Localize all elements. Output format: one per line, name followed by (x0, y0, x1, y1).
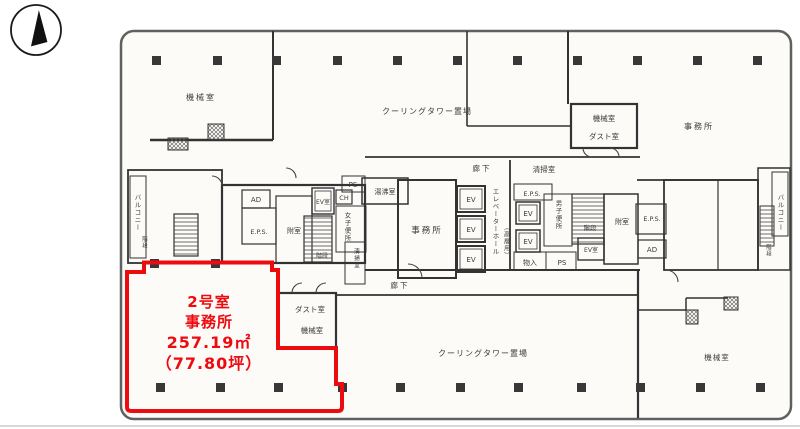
room-label-elevator-4: EV (523, 210, 532, 218)
north-arrow-compass (11, 5, 61, 55)
room-label-dust-room-top-right: ダスト室 (589, 131, 619, 141)
room-label-eps-center: E.P.S. (523, 190, 540, 198)
room-label-corridor-bottom: 廊下 (391, 280, 410, 290)
floor-plan-drawing: 機械室 クーリングタワー置場 機械室 ダスト室 事務所 バルコニー 階段 AD … (0, 0, 800, 429)
room-label-machine-room-notch: 機械室 (301, 325, 324, 335)
room-label-office-top-right: 事務所 (684, 121, 714, 131)
highlight-room-no: 2号室 (187, 293, 230, 311)
room-label-ev-room-left: EV室 (316, 198, 330, 206)
room-label-ad-left: AD (251, 196, 261, 204)
room-label-cooling-tower-bottom: クーリングタワー置場 (438, 348, 528, 358)
floor-plan-page: 機械室 クーリングタワー置場 機械室 ダスト室 事務所 バルコニー 階段 AD … (0, 0, 800, 429)
room-label-ps-right: PS (558, 259, 567, 267)
room-label-hot-water-room: 湯沸室 (375, 187, 396, 196)
room-label-elevator-hall: エレベーターホール (491, 188, 499, 256)
highlight-area-sqm: 257.19㎡ (167, 333, 252, 352)
room-label-cooling-tower-top: クーリングタワー置場 (382, 106, 472, 116)
room-label-machine-room-top-left: 機械室 (186, 92, 216, 102)
room-label-corridor-top: 廊下 (473, 163, 492, 173)
room-label-womens-toilet: 女子便所 (343, 211, 351, 243)
room-label-stairs-balcony-right: 階段 (765, 243, 772, 258)
room-label-ev-room-right: EV室 (584, 246, 598, 254)
room-label-elevator-2: EV (466, 226, 475, 234)
room-label-balcony-left: バルコニー (133, 194, 141, 232)
room-label-eps-right: E.P.S. (643, 215, 660, 223)
room-label-eps-left: E.P.S. (250, 228, 267, 236)
room-label-high-rise: （高層用） (503, 224, 510, 259)
room-label-anteroom-left: 附室 (287, 226, 301, 235)
room-label-stairs-balcony-left: 階段 (141, 235, 148, 250)
room-label-elevator-3: EV (466, 256, 475, 264)
room-label-balcony-right: バルコニー (776, 194, 784, 232)
room-label-machine-room-bottom-right: 機械室 (704, 352, 730, 362)
room-label-office-center: 事務所 (411, 225, 443, 236)
room-label-storage: 物入 (523, 258, 537, 267)
room-label-stairs-center: 階段 (316, 252, 328, 260)
room-label-cleaning-room-right: 清掃室 (533, 164, 556, 174)
room-label-cleaning-room-small: 清掃室 (353, 247, 360, 269)
room-label-elevator-1: EV (466, 196, 475, 204)
room-label-machine-room-top-right: 機械室 (593, 113, 616, 123)
room-label-stairs-right: 階段 (584, 223, 598, 232)
room-label-mens-toilet: 男子便所 (554, 200, 562, 231)
room-label-anteroom-right: 附室 (615, 217, 629, 226)
highlight-area-tsubo: （77.80坪） (156, 354, 263, 373)
room-label-dust-room-notch: ダスト室 (295, 304, 325, 314)
room-label-ch-duct: CH (339, 194, 349, 202)
room-label-ps-left: PS (349, 181, 358, 189)
room-label-ad-right: AD (647, 246, 657, 254)
room-label-elevator-5: EV (523, 238, 532, 246)
highlight-use: 事務所 (185, 313, 233, 331)
